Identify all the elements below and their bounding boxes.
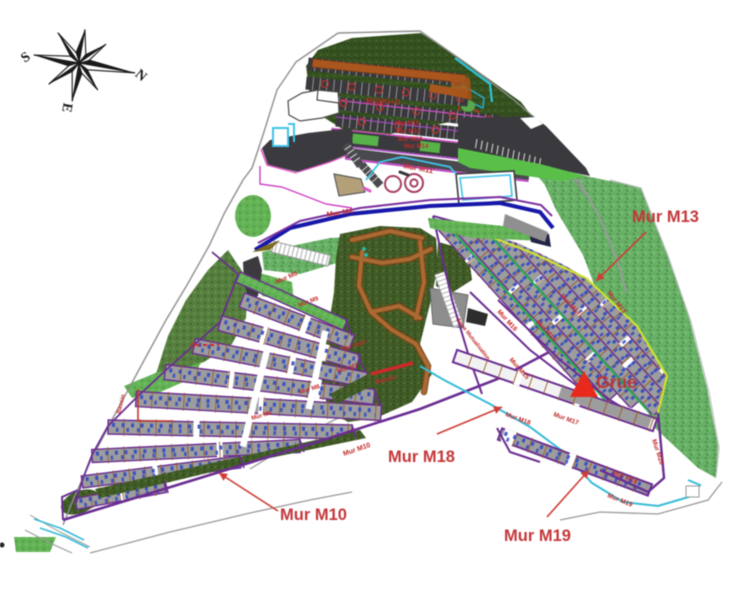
svg-text:Mur M14: Mur M14 bbox=[404, 144, 429, 150]
svg-text:Mur M16: Mur M16 bbox=[398, 137, 423, 143]
svg-text:Grue: Grue bbox=[596, 372, 637, 392]
svg-text:Mur M13: Mur M13 bbox=[632, 208, 699, 226]
svg-text:Mur M10: Mur M10 bbox=[280, 506, 347, 524]
svg-text:Mur M18: Mur M18 bbox=[388, 448, 455, 466]
svg-text:Mur M14: Mur M14 bbox=[396, 129, 421, 135]
svg-text:Mur M15: Mur M15 bbox=[395, 121, 420, 127]
svg-text:Mur M19: Mur M19 bbox=[504, 527, 571, 545]
svg-text:M(2HO+O: M(2HO+O bbox=[366, 96, 401, 107]
